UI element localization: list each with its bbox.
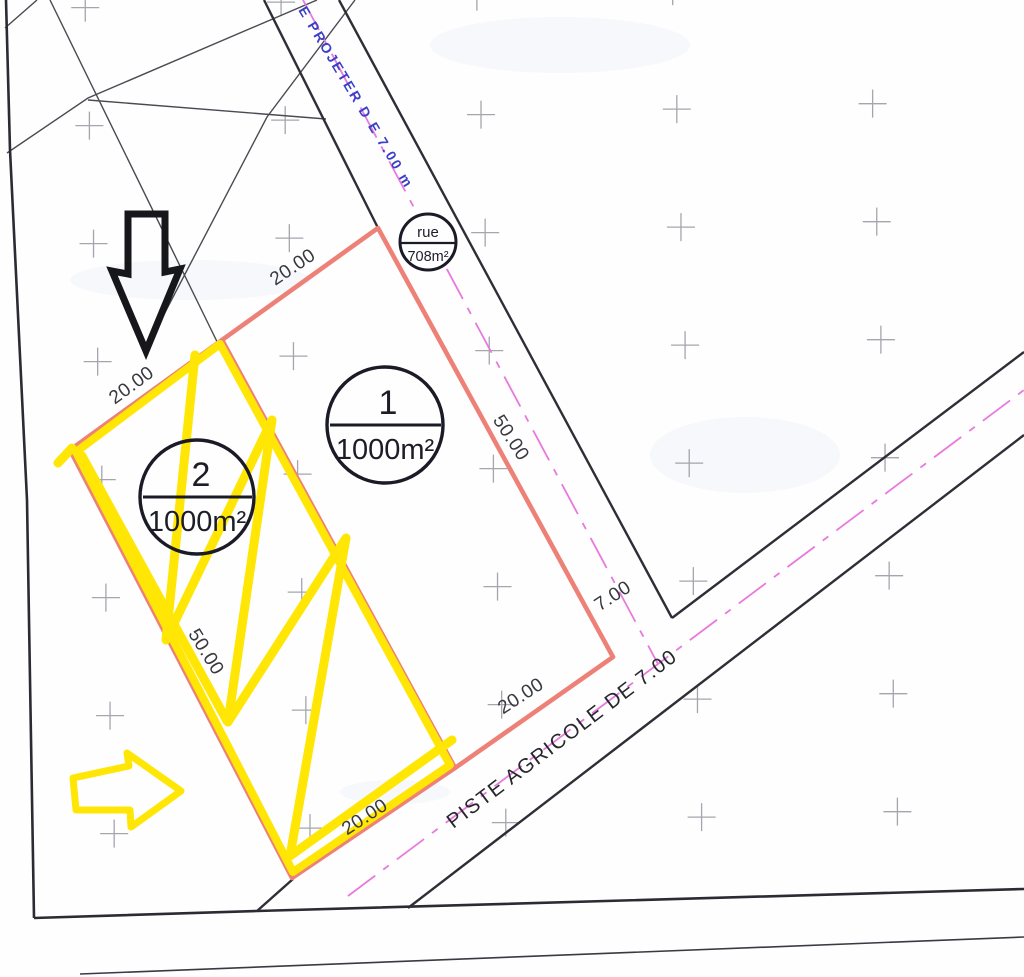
parcel-1-dim-bottom: 20.00 bbox=[494, 674, 547, 719]
rue-area-value: 708m² bbox=[407, 249, 448, 265]
scanned-cadastral-plan: rue 708m² 1 1000m² 2 1000m² 20.00 20.00 … bbox=[0, 0, 1024, 977]
rue-area-badge: rue 708m² bbox=[400, 214, 456, 270]
road-bottom-name: PISTE AGRICOLE DE 7.00 bbox=[442, 645, 681, 833]
parcel-2-dim-top: 20.00 bbox=[105, 362, 158, 408]
parcel-1-badge: 1 1000m² bbox=[327, 367, 443, 483]
yellow-right-arrow bbox=[73, 753, 181, 827]
rue-label: rue bbox=[417, 224, 439, 241]
site-plan-svg: rue 708m² 1 1000m² 2 1000m² 20.00 20.00 … bbox=[0, 0, 1024, 977]
parcel-1-number: 1 bbox=[379, 384, 398, 422]
parcel-1-outline bbox=[222, 228, 613, 768]
parcel-2-badge: 2 1000m² bbox=[140, 440, 254, 554]
parcel-1-area: 1000m² bbox=[336, 434, 435, 466]
parcel-2-number: 2 bbox=[192, 456, 211, 494]
parcel-2-area: 1000m² bbox=[148, 506, 247, 538]
sheet-border bbox=[6, 0, 1024, 974]
old-boundary-lines bbox=[5, 0, 355, 358]
